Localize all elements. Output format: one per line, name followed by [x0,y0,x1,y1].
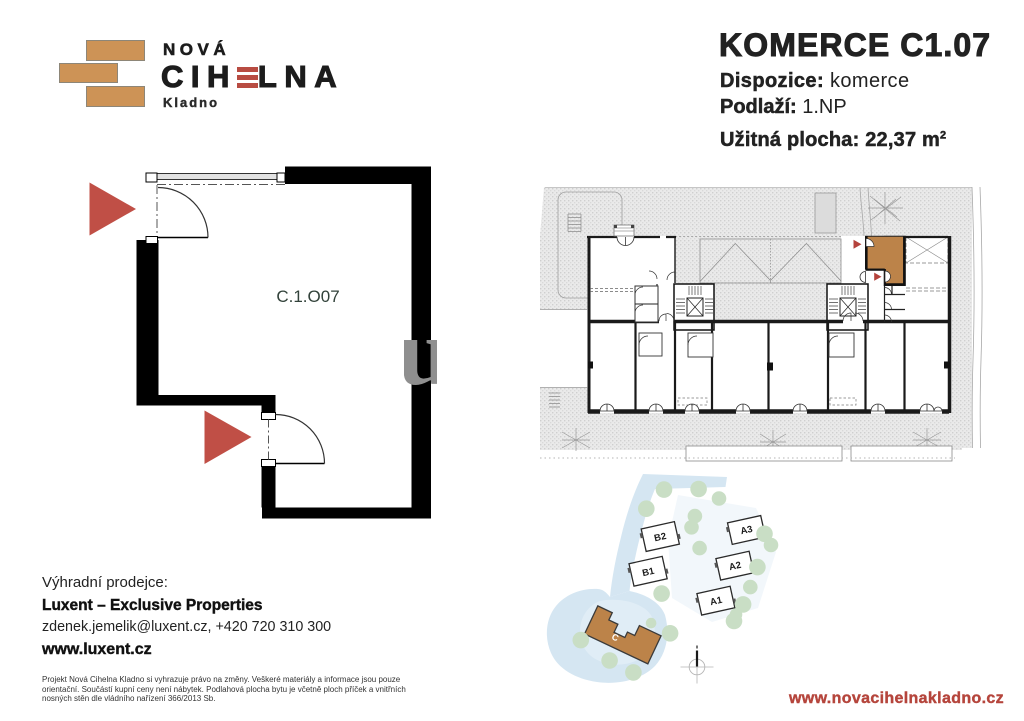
svg-text:C.1.O07: C.1.O07 [276,287,339,306]
